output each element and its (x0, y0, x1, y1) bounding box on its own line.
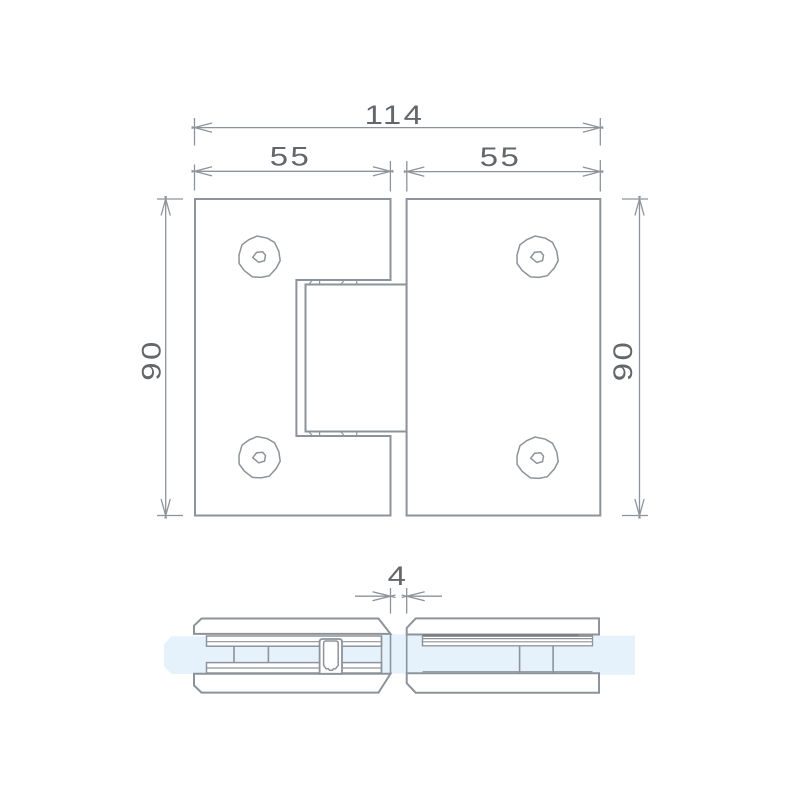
svg-text:114: 114 (365, 101, 425, 131)
svg-text:4: 4 (388, 562, 409, 592)
svg-text:90: 90 (609, 340, 639, 382)
svg-text:55: 55 (480, 143, 522, 173)
svg-text:55: 55 (270, 142, 312, 172)
svg-text:90: 90 (137, 339, 167, 381)
